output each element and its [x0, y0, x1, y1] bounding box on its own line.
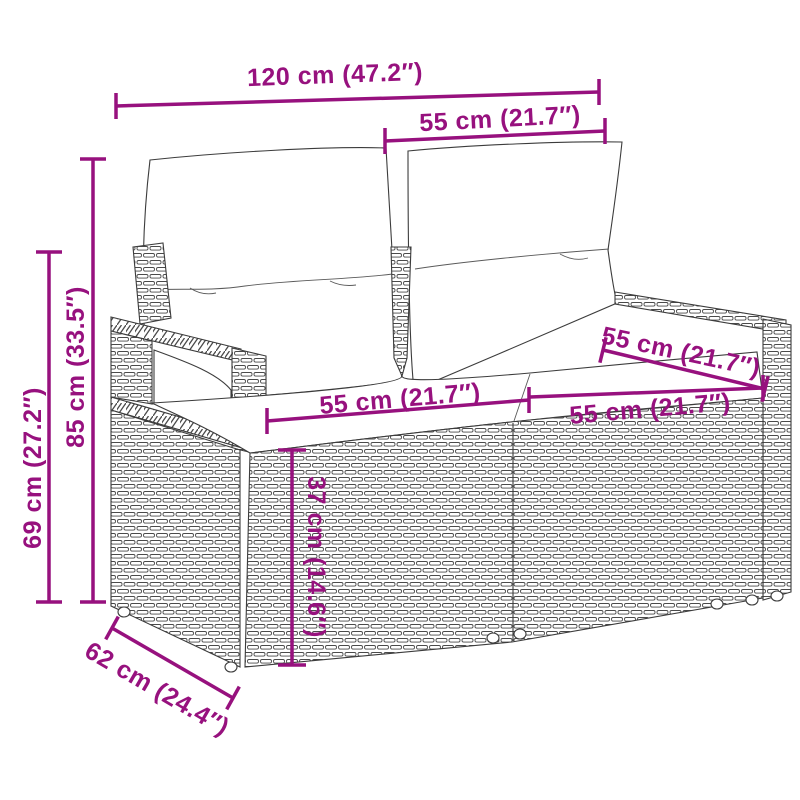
left-arm-filler: [111, 331, 152, 404]
back-cushion-right: [408, 142, 622, 390]
foot: [514, 629, 526, 639]
seat-height-label: 37 cm (14.6″): [302, 476, 330, 638]
diagram-svg: 120 cm (47.2″) 55 cm (21.7″) 85 cm (33.5…: [0, 0, 800, 800]
left-side-panel: [111, 410, 240, 667]
foot: [711, 599, 723, 609]
dim-total-height: 85 cm (33.5″): [62, 159, 106, 602]
center-back-post: [391, 247, 411, 376]
right-arm-top-rail: [615, 292, 786, 333]
right-arm-post: [763, 319, 791, 600]
foot: [118, 607, 130, 617]
foot: [225, 662, 237, 672]
armrest-height-label: 69 cm (27.2″): [19, 387, 47, 549]
foot: [746, 595, 758, 605]
foot: [487, 633, 499, 643]
dim-armrest-height: 69 cm (27.2″): [19, 252, 62, 602]
dimension-diagram: 120 cm (47.2″) 55 cm (21.7″) 85 cm (33.5…: [0, 0, 800, 800]
total-height-label: 85 cm (33.5″): [62, 286, 90, 448]
overall-width-label: 120 cm (47.2″): [247, 58, 424, 92]
foot: [771, 591, 783, 601]
